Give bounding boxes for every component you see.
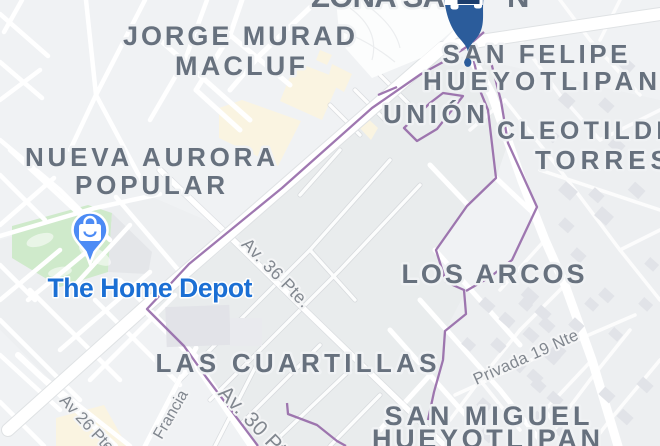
svg-text:TORRES: TORRES bbox=[535, 145, 660, 175]
svg-text:CLEOTILDE: CLEOTILDE bbox=[497, 117, 660, 145]
svg-text:N: N bbox=[507, 0, 529, 14]
svg-text:HUEYOTLIPAN: HUEYOTLIPAN bbox=[423, 66, 657, 96]
svg-text:NUEVA AURORA: NUEVA AURORA bbox=[25, 142, 275, 172]
svg-text:HUEYOTLIPAN: HUEYOTLIPAN bbox=[372, 424, 600, 446]
svg-text:LOS ARCOS: LOS ARCOS bbox=[402, 259, 585, 289]
svg-text:JORGE MURAD: JORGE MURAD bbox=[123, 21, 355, 51]
svg-text:ZONA SA: ZONA SA bbox=[311, 0, 445, 14]
svg-text:UNIÓN: UNIÓN bbox=[383, 99, 485, 129]
svg-text:The Home Depot: The Home Depot bbox=[48, 273, 253, 303]
